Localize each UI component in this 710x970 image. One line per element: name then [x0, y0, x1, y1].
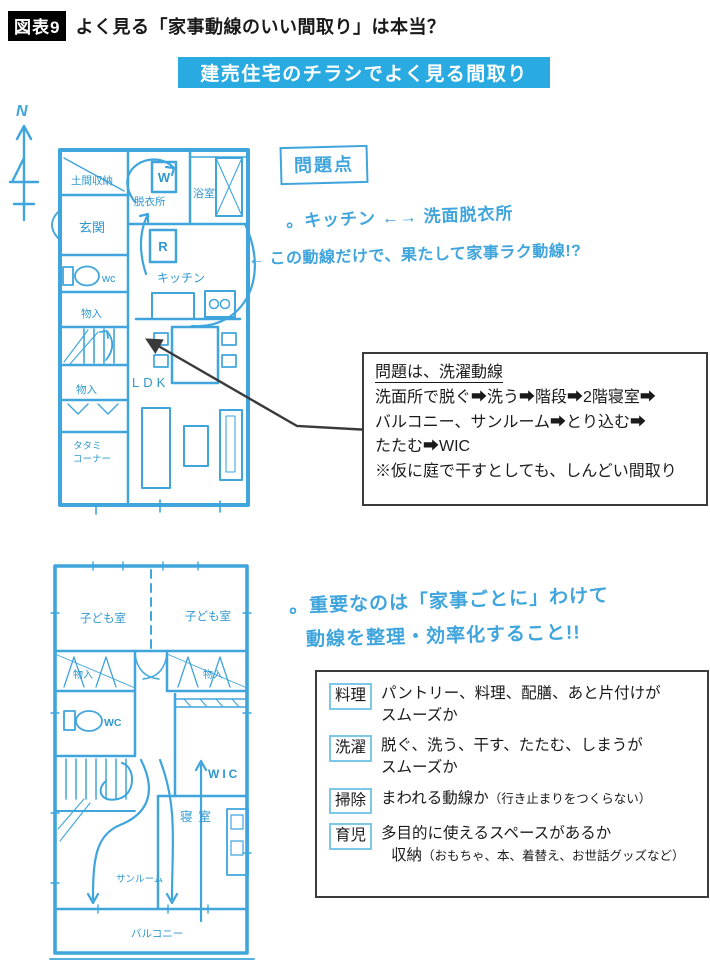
note-key-message-1: 。重要なのは「家事ごとに」わけて [289, 580, 610, 618]
room-label-mono-right: 物入 [203, 668, 223, 681]
laundry-problem-title: 問題は、洗濯動線 [375, 361, 695, 386]
checklist-text-small: （行き止まりをつくらない） [489, 792, 652, 806]
laundry-problem-line: たたむ➡WIC [375, 435, 695, 460]
checklist-item-cleaning: 掃除 まわれる動線か（行き止まりをつくらない） [329, 788, 697, 815]
room-label-kids-right: 子ども室 [185, 609, 231, 623]
room-label-wc-2f: WC [104, 717, 122, 729]
checklist-label-cooking: 料理 [329, 683, 372, 710]
room-label-kitchen: キッチン [157, 271, 205, 285]
compass-label: N [16, 103, 28, 120]
problem-point-box: 問題点 [280, 145, 369, 185]
room-label-datsui: 脱衣所 [134, 195, 166, 208]
figure-number-badge: 図表9 [8, 11, 66, 41]
checklist-text-small: （おもちゃ、本、着替え、お世話グッズなど） [422, 849, 685, 863]
room-label-kids-left: 子ども室 [80, 611, 126, 625]
checklist-text: パントリー、料理、配膳、あと片付けが [381, 683, 661, 705]
checklist-text: 多目的に使えるスペースがあるか [381, 823, 685, 845]
washer-mark: W [158, 170, 171, 185]
checklist-label-childcare: 育児 [329, 823, 372, 850]
room-label-tatami-2: コーナー [73, 454, 111, 465]
housework-checklist-box: 料理 パントリー、料理、配膳、あと片付けが スムーズか 洗濯 脱ぐ、洗う、干す、… [315, 670, 709, 898]
plan-banner: 建売住宅のチラシでよく見る間取り [178, 57, 550, 88]
note-flow-question: ← この動線だけで、果たして家事ラク動線!? [248, 237, 582, 270]
checklist-item-childcare: 育児 多目的に使えるスペースがあるか 収納（おもちゃ、本、着替え、お世話グッズな… [329, 823, 697, 866]
floor-plan-2f: 子ども室 子ども室 物入 物入 WC WIC 寝室 サンルーム バルコニー [38, 553, 288, 970]
room-label-wic: WIC [208, 767, 240, 781]
checklist-text-2: スムーズか [381, 757, 643, 779]
laundry-problem-box: 問題は、洗濯動線 洗面所で脱ぐ➡洗う➡階段➡2階寝室➡ バルコニー、サンルーム➡… [362, 352, 708, 506]
laundry-problem-line: ※仮に庭で干すとしても、しんどい間取り [375, 460, 695, 485]
fridge-mark: R [158, 239, 168, 254]
laundry-problem-line: バルコニー、サンルーム➡とり込む➡ [375, 411, 695, 436]
room-label-mono-lower: 物入 [76, 383, 97, 396]
note-key-message-2: 動線を整理・効率化すること!! [306, 617, 581, 651]
room-label-doma: 土間収納 [71, 174, 113, 187]
floor-plan-1f: 土間収納 玄関 脱衣所 浴室 W R wc キッチン 物入 物入 タタミ コーナ… [40, 112, 285, 524]
room-label-wc: wc [101, 273, 116, 285]
note-kitchen-laundry: 。キッチン ←→ 洗面脱衣所 [286, 199, 514, 232]
room-label-balcony: バルコニー [131, 928, 183, 940]
checklist-text-2: スムーズか [381, 705, 661, 727]
room-label-bedroom: 寝室 [180, 809, 217, 824]
checklist-text: まわれる動線か [381, 790, 489, 807]
figure-header: 図表9 よく見る「家事動線のいい間取り」は本当？ [8, 11, 445, 41]
room-label-mono-upper: 物入 [81, 307, 102, 320]
figure-title: よく見る「家事動線のいい間取り」は本当？ [75, 13, 445, 39]
checklist-item-laundry: 洗濯 脱ぐ、洗う、干す、たたむ、しまうが スムーズか [329, 735, 697, 778]
checklist-text: 脱ぐ、洗う、干す、たたむ、しまうが [381, 735, 643, 757]
room-label-genkan: 玄関 [79, 220, 105, 235]
connector-arrow [130, 322, 375, 440]
checklist-item-cooking: 料理 パントリー、料理、配膳、あと片付けが スムーズか [329, 683, 697, 726]
checklist-text-2: 収納 [391, 847, 422, 864]
laundry-problem-line: 洗面所で脱ぐ➡洗う➡階段➡2階寝室➡ [375, 386, 695, 411]
room-label-sunroom: サンルーム [116, 874, 163, 885]
checklist-label-cleaning: 掃除 [329, 788, 372, 815]
room-label-mono-left: 物入 [73, 668, 93, 681]
checklist-label-laundry: 洗濯 [329, 735, 372, 762]
room-label-bath: 浴室 [193, 186, 215, 200]
room-label-tatami-1: タタミ [73, 441, 102, 452]
